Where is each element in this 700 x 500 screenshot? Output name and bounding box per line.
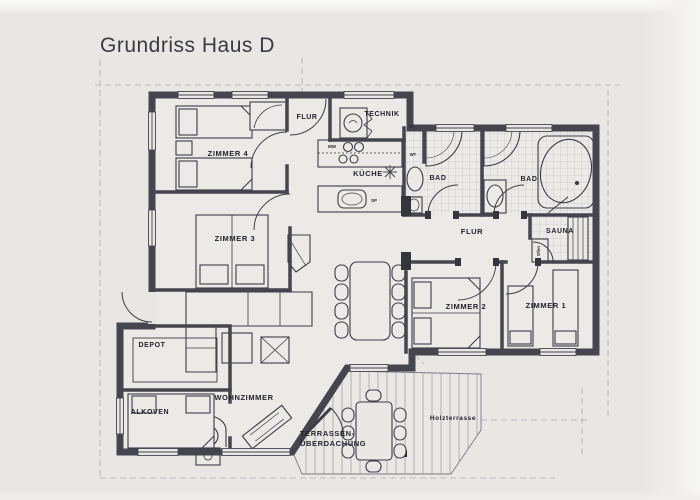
chair	[335, 284, 348, 300]
room-label-bad-right: BAD	[521, 176, 538, 183]
nightstand	[176, 141, 192, 155]
window	[232, 92, 268, 99]
window	[149, 112, 156, 150]
chair	[366, 390, 381, 401]
window	[438, 349, 486, 356]
room-label-zimmer4: ZIMMER 4	[208, 149, 249, 158]
chair	[366, 461, 381, 472]
window	[117, 398, 124, 434]
room-label-alkoven: ALKOVEN	[131, 409, 169, 416]
chair	[394, 444, 406, 458]
floorplan-drawing: Grundriss Haus D	[0, 0, 700, 500]
chair	[335, 322, 348, 338]
window	[222, 449, 290, 456]
label-sauna-oven: Ofen	[536, 246, 541, 257]
room-label-zimmer3: ZIMMER 3	[215, 234, 256, 243]
sauna-bench	[568, 217, 588, 260]
room-label-bad-left: BAD	[430, 175, 447, 182]
page-title: Grundriss Haus D	[100, 34, 275, 57]
label-dishwasher: SP	[371, 198, 377, 203]
room-label-flur-top: FLUR	[296, 114, 317, 121]
coffee-table	[222, 333, 252, 363]
chair	[392, 284, 405, 300]
room-label-kueche: KÜCHE	[353, 169, 383, 178]
room-label-depot: DEPOT	[138, 342, 165, 349]
double-bed	[412, 278, 480, 348]
label-washstand-lower: WT	[410, 152, 417, 157]
room-label-zimmer2: ZIMMER 2	[446, 302, 487, 311]
alcove-bed	[128, 394, 214, 448]
label-washstand-upper: WT	[409, 124, 416, 129]
chair	[392, 322, 405, 338]
room-label-zimmer1: ZIMMER 1	[526, 301, 567, 310]
chair	[394, 408, 406, 422]
window	[344, 92, 394, 99]
room-label-technik: TECHNIK	[364, 111, 399, 118]
light-symbol	[383, 165, 397, 179]
window	[506, 125, 552, 132]
label-terrasse-line2: ÜBERDACHUNG	[300, 439, 366, 448]
label-holzterrasse: Holzterrasse	[430, 415, 476, 422]
room-label-sauna: SAUNA	[546, 228, 574, 235]
chair	[335, 303, 348, 319]
washbasin	[407, 167, 423, 191]
window	[540, 349, 576, 356]
chair	[335, 265, 348, 281]
label-terrasse-line1: TERRASSEN-	[300, 429, 355, 438]
side-table-x	[261, 337, 289, 363]
window	[149, 210, 156, 246]
chair	[392, 303, 405, 319]
single-bed	[176, 158, 252, 190]
label-microwave: MW	[328, 144, 337, 149]
door-opening	[148, 292, 156, 324]
window	[178, 92, 214, 99]
window	[436, 125, 474, 132]
chair	[342, 408, 354, 422]
single-bed	[508, 286, 533, 346]
single-bed	[176, 106, 252, 138]
side-exit-door-arc	[122, 292, 152, 322]
chair	[394, 426, 406, 440]
window	[350, 365, 388, 372]
double-bed	[196, 215, 268, 288]
room-label-wohnzimmer: WOHNZIMMER	[214, 393, 273, 402]
window	[138, 449, 178, 456]
room-label-flur-mid: FLUR	[461, 227, 483, 236]
kitchen-island	[318, 186, 402, 212]
wardrobe	[250, 102, 286, 130]
